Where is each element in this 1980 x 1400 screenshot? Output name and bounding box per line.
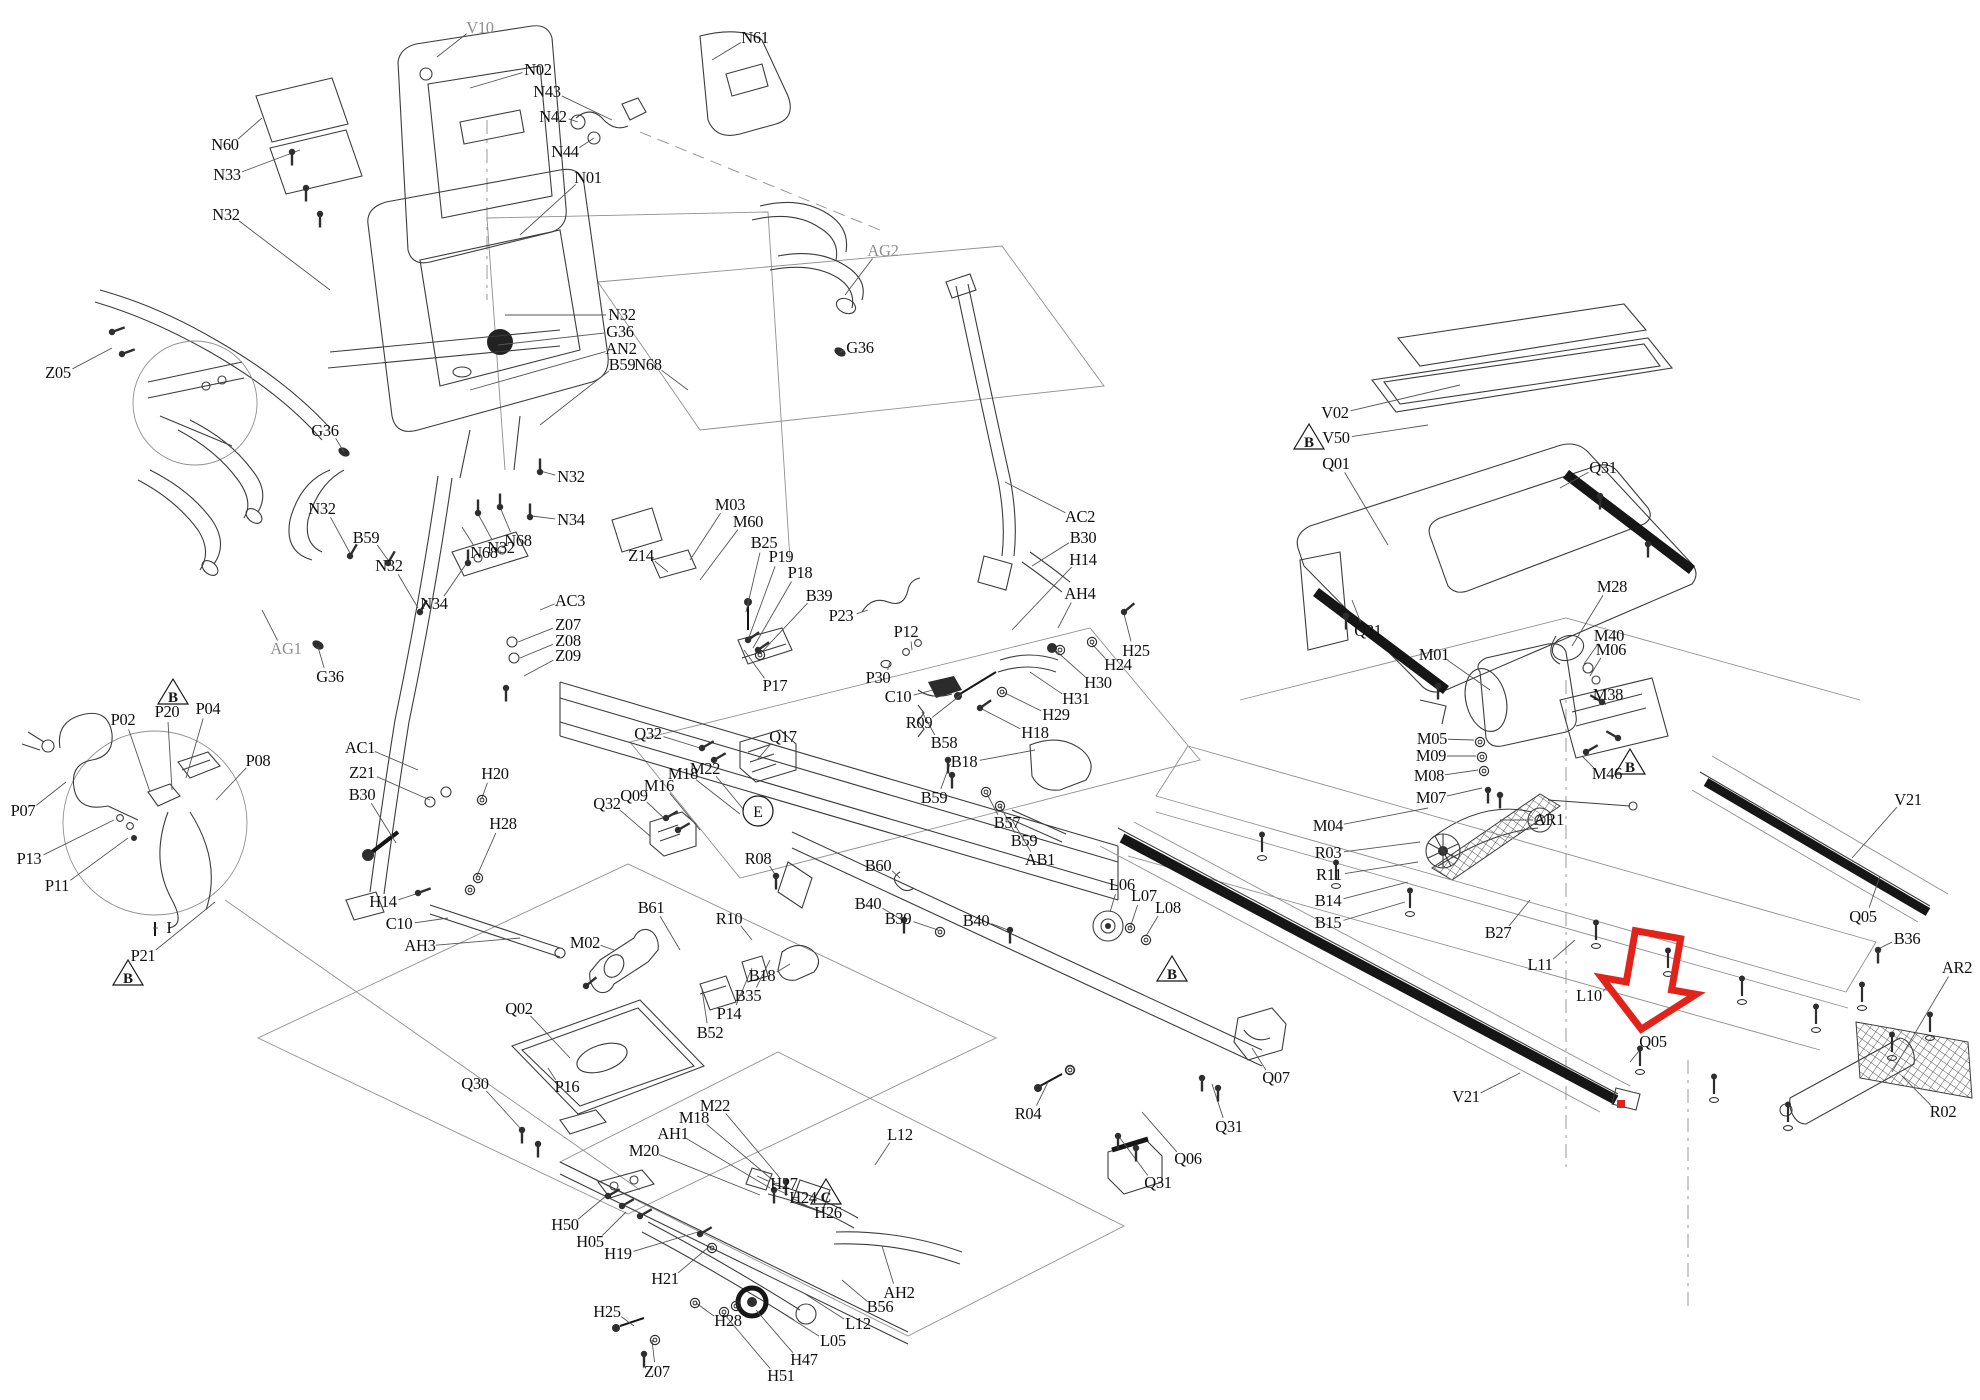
svg-text:B: B	[123, 971, 133, 987]
console-assembly	[256, 26, 790, 560]
section-markers: B B C B B B E	[113, 424, 1645, 1206]
triangle-marker: B	[1157, 956, 1187, 983]
triangle-marker: B	[1294, 424, 1324, 451]
uprights	[346, 274, 1070, 958]
triangle-marker: B	[1615, 749, 1645, 776]
svg-text:E: E	[753, 804, 763, 821]
svg-text:B: B	[1167, 967, 1177, 983]
diagram-canvas: B B C B B B E	[0, 0, 1980, 1400]
circle-marker: E	[743, 796, 773, 826]
highlight-arrow	[1594, 926, 1705, 1037]
svg-text:B: B	[1625, 760, 1635, 776]
triangle-marker: B	[113, 960, 143, 987]
highlight-dot	[1617, 1100, 1625, 1108]
right-assembly	[1100, 304, 1972, 1124]
left-handlebar	[95, 290, 351, 651]
diagram-page: B B C B B B E V10N02N43N42N44N61N01N60N3…	[0, 0, 1980, 1400]
leader-lines	[36, 34, 1948, 1369]
svg-text:C: C	[821, 1190, 832, 1206]
svg-text:B: B	[168, 690, 178, 706]
triangle-marker: B	[158, 679, 188, 706]
svg-text:B: B	[1304, 435, 1314, 451]
bottom-linkage	[560, 1162, 962, 1344]
triangle-marker: C	[811, 1179, 841, 1206]
reference-planes	[225, 120, 1860, 1336]
center-rails	[560, 643, 1286, 1194]
base-pan	[512, 929, 819, 1134]
middle-brackets	[738, 578, 962, 698]
